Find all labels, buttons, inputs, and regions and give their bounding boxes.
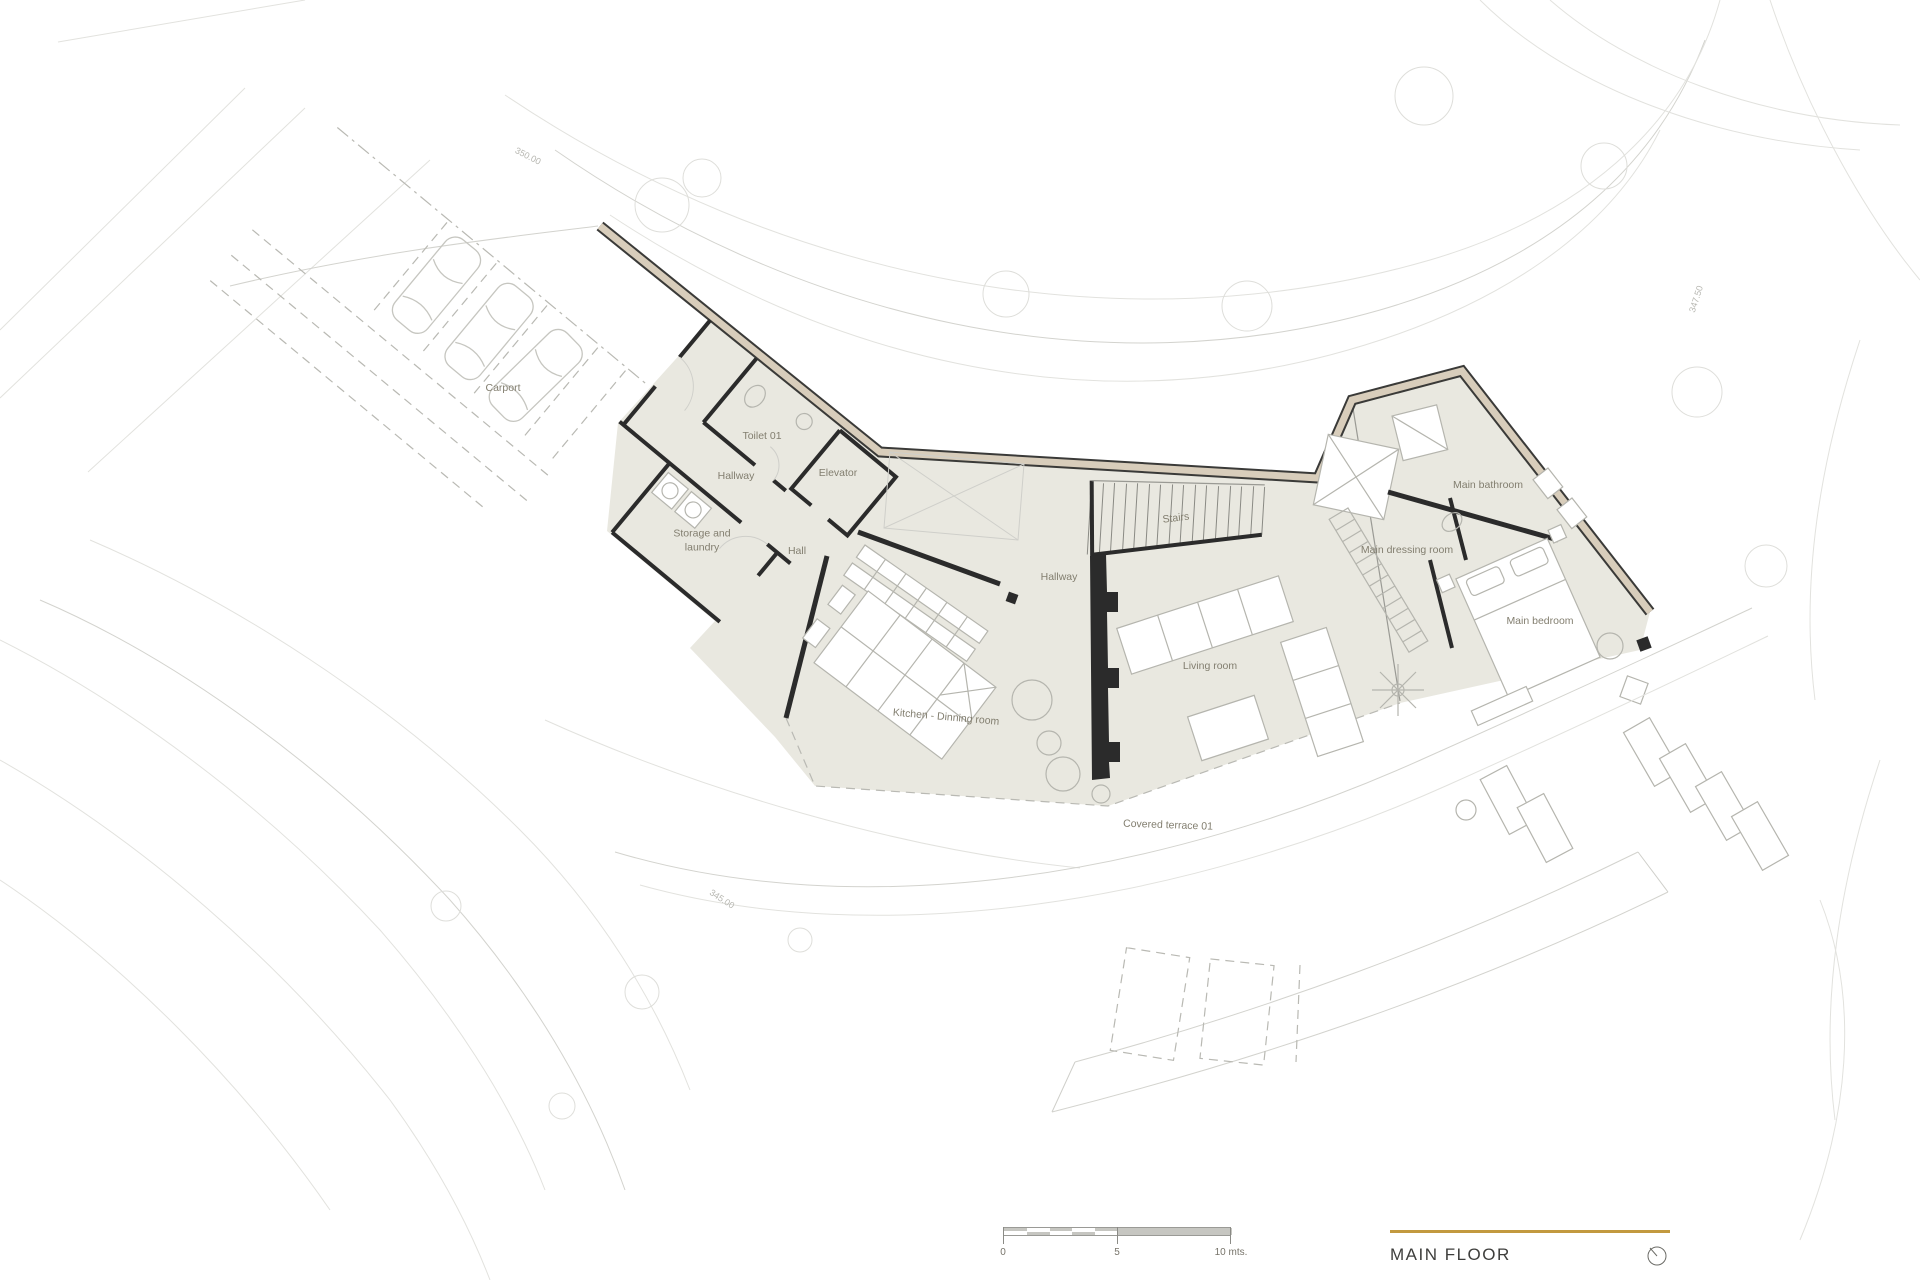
room-label-main-bedroom: Main bedroom [1506,615,1573,629]
room-label-hallway-entry: Hallway [718,470,755,484]
patio-skylight [1313,434,1398,519]
carport-area [210,128,645,537]
scale-segment [1095,1228,1118,1231]
scale-segment [1072,1232,1095,1235]
scale-bar: 0510 mts. [1003,1224,1253,1266]
scale-tick [1117,1227,1118,1244]
title-block: MAIN FLOOR [1390,1230,1670,1268]
room-label-hall: Hall [788,545,806,559]
scale-segment [1050,1228,1073,1231]
scale-segment-solid [1118,1228,1232,1235]
car-2 [440,278,539,385]
scale-label-1: 5 [1114,1247,1120,1258]
floor-plan-canvas: CarportToilet 01HallwayElevatorStorage a… [0,0,1920,1280]
room-label-toilet-01: Toilet 01 [742,430,781,444]
room-label-elevator: Elevator [819,467,858,481]
drawing-title: MAIN FLOOR [1390,1245,1511,1265]
room-label-living-room: Living room [1183,660,1237,674]
room-label-main-dressing-room: Main dressing room [1361,544,1453,558]
room-label-hallway-main: Hallway [1041,571,1078,585]
sun-loungers [1456,718,1788,871]
title-rule [1390,1230,1670,1233]
scale-segment [1004,1228,1027,1231]
compass-icon [1644,1242,1670,1268]
floor-plan-drawing [0,0,1920,1280]
room-label-main-bathroom: Main bathroom [1453,479,1523,493]
room-label-carport: Carport [485,382,520,396]
scale-tick [1003,1227,1004,1244]
scale-label-2: 10 mts. [1215,1247,1248,1258]
scale-tick [1230,1227,1231,1244]
room-label-storage-laundry: Storage and laundry [661,527,743,554]
car-3 [484,324,588,427]
car-1 [387,232,486,339]
scale-label-0: 0 [1000,1247,1006,1258]
scale-segment [1027,1232,1050,1235]
